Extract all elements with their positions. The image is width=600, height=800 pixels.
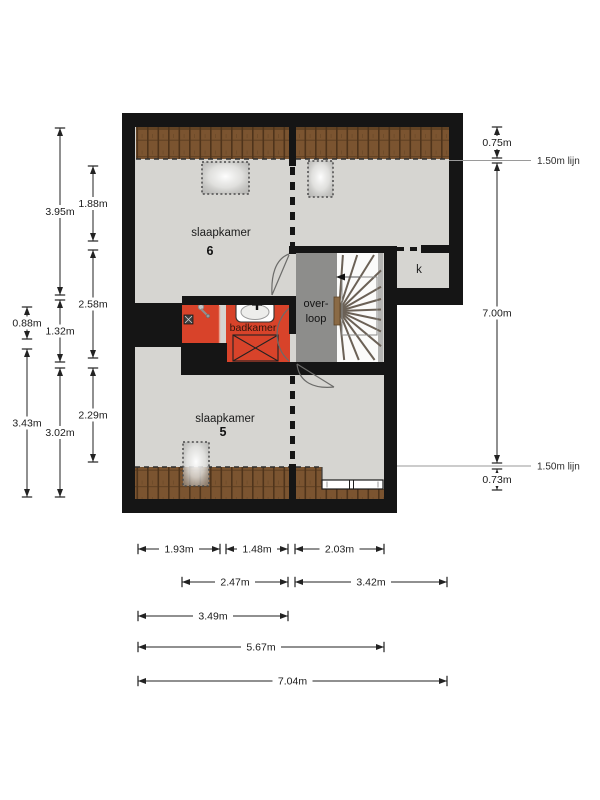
- room-label-landing-line1: over-: [303, 298, 328, 310]
- dimension-label: 7.04m: [278, 676, 307, 688]
- reference-line: 1.50m lijn: [397, 462, 580, 473]
- room-number-bedroom6: 6: [207, 244, 214, 258]
- dimension-label: 2.03m: [325, 544, 354, 556]
- dimension-label: 3.43m: [12, 418, 41, 430]
- dimension-label: 0.75m: [482, 137, 511, 149]
- dimension-label: 1.32m: [45, 326, 74, 338]
- dimension-395m: 3.95m: [40, 128, 80, 295]
- room-label-closet: k: [416, 264, 422, 276]
- room-label-bedroom5: slaapkamer: [195, 413, 255, 425]
- dimension-label: 7.00m: [482, 308, 511, 320]
- dimension-349m: 3.49m: [138, 610, 288, 623]
- dimension-193m: 1.93m: [138, 543, 220, 556]
- room-label-bathroom: badkamer: [230, 322, 277, 334]
- dimension-label: 1.93m: [164, 544, 193, 556]
- dimension-label: 0.88m: [12, 318, 41, 330]
- reference-line: 1.50m lijn: [449, 156, 580, 167]
- dimension-label: 2.47m: [220, 577, 249, 589]
- dimension-229m: 2.29m: [73, 368, 113, 462]
- dimension-label: 3.49m: [198, 611, 227, 623]
- window-bottom-right: [322, 480, 383, 489]
- roof-window-bedroom6: [202, 162, 249, 194]
- room-number-bedroom5: 5: [220, 425, 227, 439]
- dimension-label: 5.67m: [246, 642, 275, 654]
- dimension-258m: 2.58m: [73, 250, 113, 358]
- toilet-fixture: [184, 315, 193, 324]
- roof-window-bedroom5: [183, 442, 209, 486]
- floorplan-page: slaapkamer 6 slaapkamer 5 badkamer over-…: [0, 0, 600, 800]
- dimension-075m: 0.75m: [477, 127, 517, 158]
- dimension-343m: 3.43m: [7, 349, 47, 497]
- dimension-label: 2.29m: [78, 410, 107, 422]
- room-label-landing-line2: loop: [306, 313, 327, 325]
- reference-line-label: 1.50m lijn: [537, 156, 580, 167]
- roof-window-right: [308, 161, 333, 197]
- staircase: [334, 253, 383, 362]
- dimension-label: 1.48m: [242, 544, 271, 556]
- dimension-188m: 1.88m: [73, 166, 113, 241]
- dimension-label: 3.95m: [45, 206, 74, 218]
- dimension-label: 3.02m: [45, 427, 74, 439]
- floorplan-drawing: slaapkamer 6 slaapkamer 5 badkamer over-…: [0, 0, 600, 800]
- stair-newel: [334, 297, 340, 325]
- dimension-label: 3.42m: [356, 577, 385, 589]
- dimension-700m: 7.00m: [477, 163, 517, 463]
- room-label-bedroom6: slaapkamer: [191, 227, 251, 239]
- dimension-342m: 3.42m: [295, 576, 447, 589]
- dimension-203m: 2.03m: [295, 543, 384, 556]
- dimension-label: 2.58m: [78, 299, 107, 311]
- reference-line-label: 1.50m lijn: [537, 462, 580, 473]
- dimension-label: 0.73m: [482, 474, 511, 486]
- dimension-label: 1.88m: [78, 198, 107, 210]
- dimension-148m: 1.48m: [226, 543, 288, 556]
- dimension-073m: 0.73m: [477, 469, 517, 490]
- dimension-247m: 2.47m: [182, 576, 288, 589]
- dimension-704m: 7.04m: [138, 675, 447, 688]
- dimension-302m: 3.02m: [40, 368, 80, 497]
- dimension-567m: 5.67m: [138, 641, 384, 654]
